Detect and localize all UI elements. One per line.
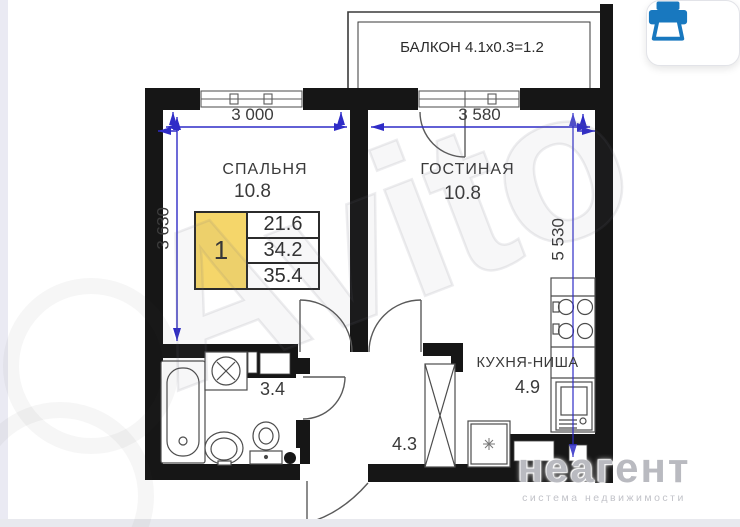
legend-value-total: 35.4	[248, 262, 318, 288]
entrance-door	[307, 481, 368, 523]
dimension-left-height: 3 630	[155, 183, 174, 273]
balcony-label: БАЛКОН 4.1x0.3=1.2	[362, 40, 582, 57]
dimension-bedroom-width: 3 000	[180, 106, 325, 125]
print-button[interactable]	[646, 0, 740, 66]
dimension-living-width: 3 580	[407, 106, 552, 125]
door-hinge-dot	[284, 452, 296, 464]
area-legend-table: 1 21.6 34.2 35.4	[194, 211, 320, 290]
bathroom-area: 3.4	[240, 380, 305, 400]
living-room-door	[369, 300, 421, 352]
bathtub	[161, 361, 205, 463]
legend-value-area: 34.2	[248, 237, 318, 263]
bottom-edge-strip	[0, 519, 740, 527]
living-room-area: 10.8	[395, 184, 530, 205]
bedroom-name: СПАЛЬНЯ	[185, 161, 345, 179]
living-room-name: ГОСТИНАЯ	[385, 161, 550, 179]
kitchen-name: КУХНЯ-НИША	[455, 356, 600, 372]
flat-number-cell: 1	[196, 213, 248, 288]
bedroom-area: 10.8	[185, 182, 320, 203]
bathroom-door	[303, 377, 345, 419]
kitchen-area: 4.9	[460, 378, 595, 398]
hallway-area: 4.3	[372, 435, 437, 455]
bedroom-door	[300, 300, 352, 352]
toilet	[250, 422, 282, 464]
legend-value-living: 21.6	[248, 213, 318, 237]
dimension-right-height: 5 530	[550, 194, 569, 284]
fridge	[468, 421, 510, 467]
bath-sink	[205, 432, 243, 465]
floorplan-drawing	[0, 0, 740, 527]
floorplan-viewer: БАЛКОН 4.1x0.3=1.2 СПАЛЬНЯ 10.8 ГОСТИНАЯ…	[0, 0, 740, 527]
